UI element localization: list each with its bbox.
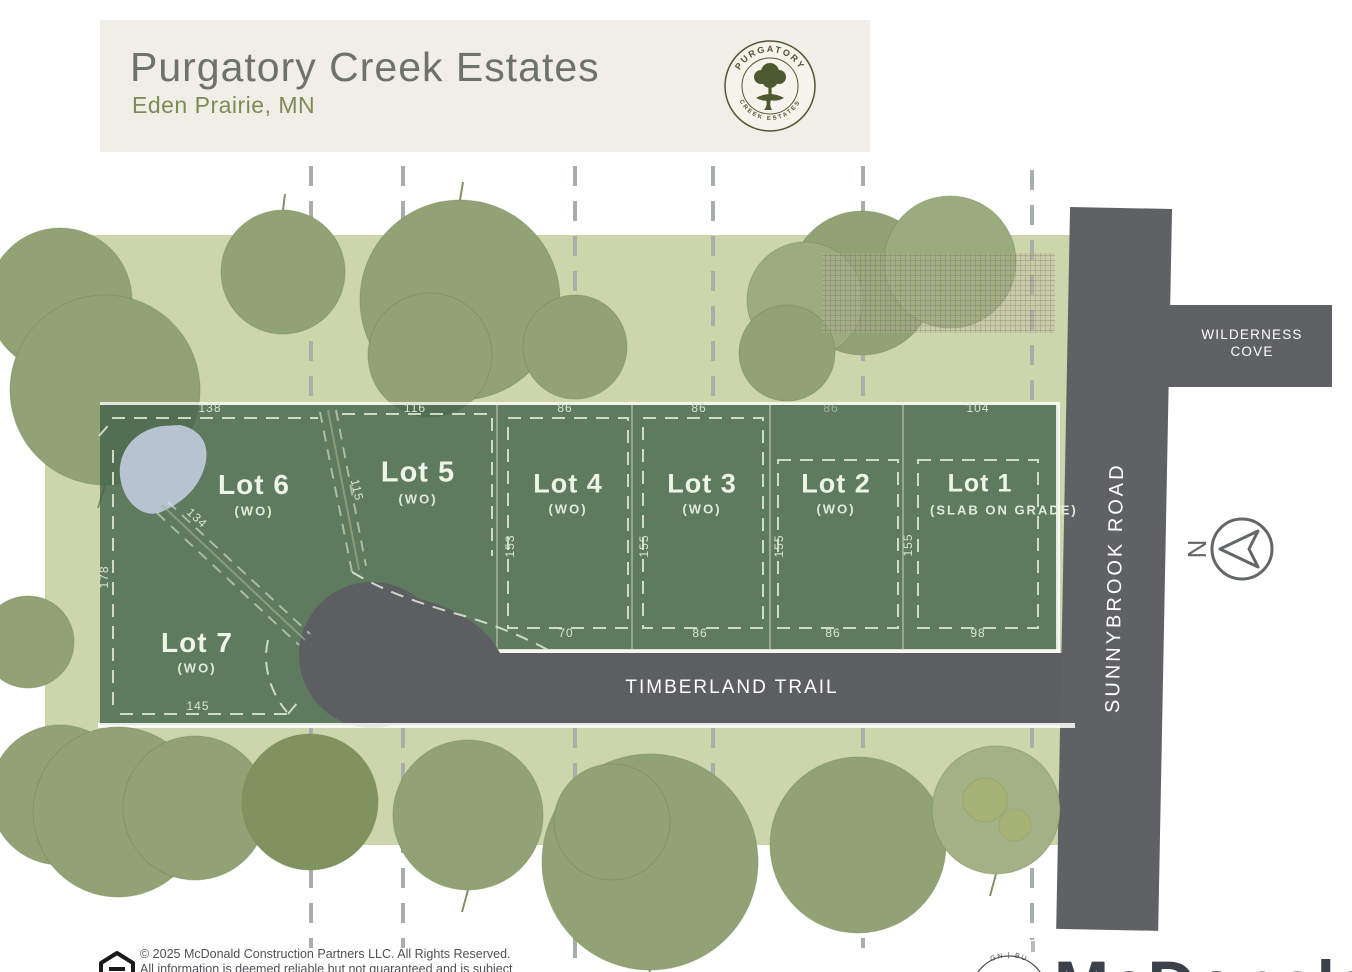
lot-4-label: Lot 4 <box>533 469 603 500</box>
footer-line1: © 2025 McDonald Construction Partners LL… <box>140 947 512 962</box>
page-subtitle: Eden Prairie, MN <box>132 92 315 119</box>
lot-5-sub: (WO) <box>398 492 437 507</box>
sunnybrook-road-label: SUNNYBROOK ROAD <box>1093 418 1137 759</box>
lot-7-label: Lot 7 <box>161 627 233 659</box>
dim-top-lot1: 104 <box>966 401 989 415</box>
dim-bottom-lot1: 98 <box>970 626 985 640</box>
lot-4-sub: (WO) <box>548 502 587 517</box>
footer-copyright: © 2025 McDonald Construction Partners LL… <box>140 947 512 972</box>
dim-bottom-lot7: 145 <box>186 699 209 713</box>
lot-2-sub: (WO) <box>816 502 855 517</box>
lot-1-sub: (SLAB ON GRADE) <box>930 503 1030 518</box>
footer-line2: All information is deemed reliable but n… <box>140 962 512 972</box>
dim-side-178: 178 <box>97 565 111 588</box>
dim-side-153: 153 <box>503 534 517 557</box>
lot-3-sub: (WO) <box>682 502 721 517</box>
dim-top-lot2: 86 <box>823 401 838 415</box>
dim-side-155a: 155 <box>637 534 651 557</box>
compass-icon <box>1212 519 1272 579</box>
lot-6-label: Lot 6 <box>218 469 290 501</box>
dim-bottom-lot2: 86 <box>825 626 840 640</box>
compass-north-label: N <box>1182 534 1212 564</box>
dim-bottom-lot3: 86 <box>692 626 707 640</box>
dim-top-lot4: 86 <box>557 401 572 415</box>
dim-top-lot5: 116 <box>404 401 426 415</box>
lot-7-sub: (WO) <box>177 661 216 676</box>
wilderness-cove-label: WILDERNESS COVE <box>1172 326 1332 360</box>
community-logo: PURGATORY CREEK ESTATES <box>722 38 818 134</box>
builder-wordmark: McDonald <box>1054 946 1352 972</box>
builder-house-icon <box>96 950 138 972</box>
dim-side-155b: 155 <box>772 534 786 557</box>
dim-top-lot3: 86 <box>691 401 706 415</box>
road-bottom-edge <box>98 723 1075 728</box>
builder-badge: GN | BU <box>963 946 1055 972</box>
dim-side-155c: 155 <box>901 533 915 556</box>
site-plan-page: Purgatory Creek Estates Eden Prairie, MN… <box>0 0 1352 972</box>
lot-2-label: Lot 2 <box>801 469 871 500</box>
lot-6-sub: (WO) <box>234 504 273 519</box>
small-tick <box>1031 941 1035 952</box>
lot-5-label: Lot 5 <box>381 457 455 490</box>
wilderness-line2: COVE <box>1172 343 1332 360</box>
dim-top-lot6: 138 <box>198 401 221 415</box>
lot-3-label: Lot 3 <box>667 469 737 500</box>
lot-1-label: Lot 1 <box>948 470 1013 499</box>
page-title: Purgatory Creek Estates <box>130 44 600 91</box>
dim-bottom-lot4: 70 <box>558 626 573 640</box>
wilderness-line1: WILDERNESS <box>1172 326 1332 343</box>
crosshatch-structure <box>822 253 1055 333</box>
timberland-trail-label: TIMBERLAND TRAIL <box>625 677 838 699</box>
